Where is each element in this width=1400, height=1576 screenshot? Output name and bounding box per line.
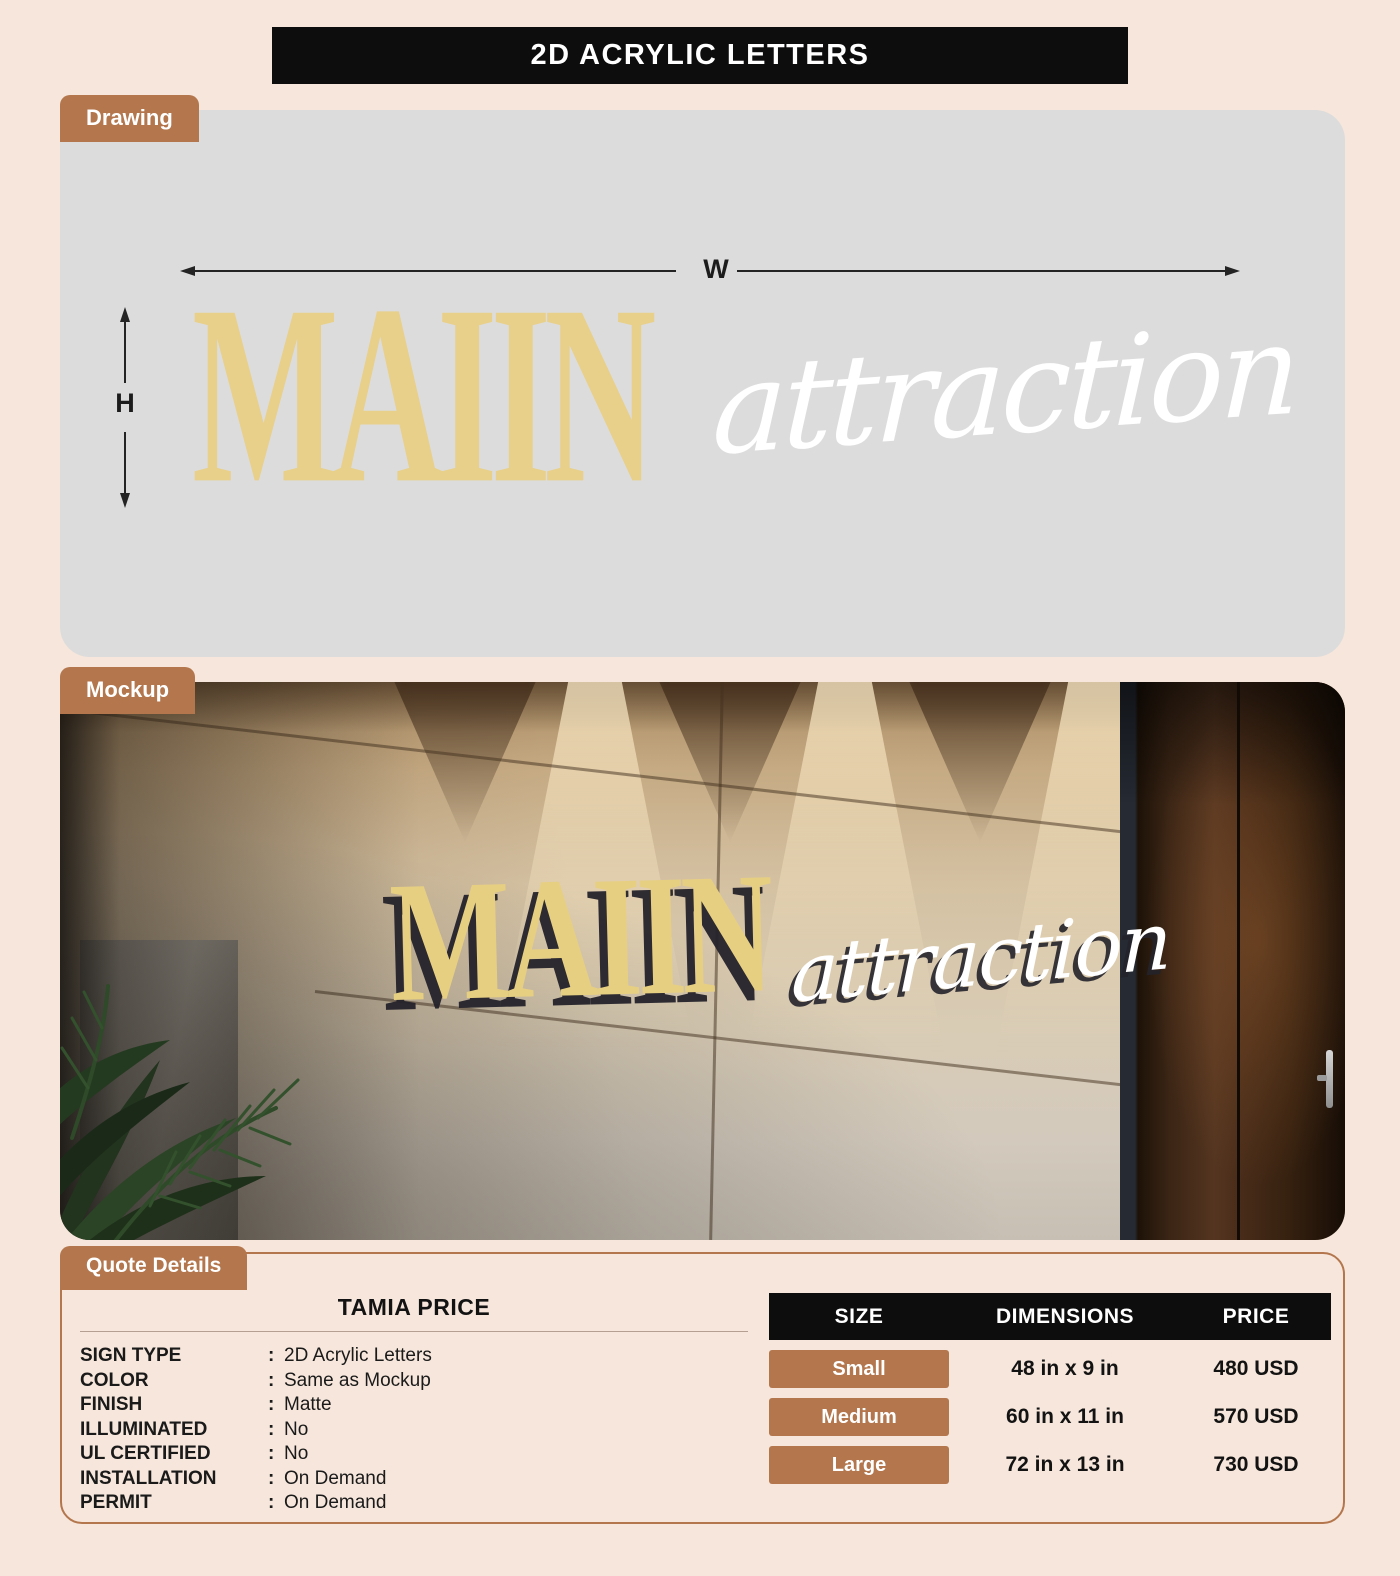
divider <box>80 1331 748 1332</box>
column-header-price: PRICE <box>1181 1305 1331 1329</box>
spec-row-ul-certified: UL CERTIFIED : No <box>80 1442 748 1467</box>
price-table: SIZE DIMENSIONS PRICE Small 48 in x 9 in… <box>769 1293 1331 1484</box>
spec-colon: : <box>268 1491 284 1516</box>
drawing-panel: W H MAIIN attraction <box>60 110 1345 657</box>
spec-label: SIGN TYPE <box>80 1344 268 1369</box>
spec-colon: : <box>268 1344 284 1369</box>
quote-sheet-page: { "page": { "title": "2D ACRYLIC LETTERS… <box>0 27 1400 1576</box>
table-row: Small 48 in x 9 in 480 USD <box>769 1350 1331 1388</box>
spec-label: COLOR <box>80 1369 268 1394</box>
spec-colon: : <box>268 1442 284 1467</box>
spec-value: On Demand <box>284 1491 748 1516</box>
size-medium-button[interactable]: Medium <box>769 1398 949 1436</box>
height-dimension-label: H <box>105 388 145 419</box>
drawing-sign-script-text: attraction <box>711 307 1299 473</box>
height-arrow-top-segment <box>124 315 126 383</box>
customer-name: TAMIA PRICE <box>80 1294 748 1321</box>
spec-row-permit: PERMIT : On Demand <box>80 1491 748 1516</box>
quote-panel: TAMIA PRICE SIGN TYPE : 2D Acrylic Lette… <box>60 1252 1345 1524</box>
spec-colon: : <box>268 1467 284 1492</box>
dimensions-value: 60 in x 11 in <box>949 1405 1181 1429</box>
dimensions-value: 72 in x 13 in <box>949 1453 1181 1477</box>
spec-colon: : <box>268 1393 284 1418</box>
mockup-tab: Mockup <box>60 667 195 714</box>
drawing-section: Drawing W H MAIIN attraction <box>60 110 1345 657</box>
quote-details-section: Quote Details TAMIA PRICE SIGN TYPE : 2D… <box>60 1252 1345 1524</box>
quote-spec-list: TAMIA PRICE SIGN TYPE : 2D Acrylic Lette… <box>80 1294 748 1516</box>
spec-value: No <box>284 1442 748 1467</box>
door-handle <box>1326 1050 1333 1108</box>
spec-label: INSTALLATION <box>80 1467 268 1492</box>
spec-colon: : <box>268 1369 284 1394</box>
drawing-sign-primary-text: MAIIN <box>192 266 649 522</box>
spec-label: UL CERTIFIED <box>80 1442 268 1467</box>
spec-row-sign-type: SIGN TYPE : 2D Acrylic Letters <box>80 1344 748 1369</box>
size-small-button[interactable]: Small <box>769 1350 949 1388</box>
spec-value: Matte <box>284 1393 748 1418</box>
dimensions-value: 48 in x 9 in <box>949 1357 1181 1381</box>
mockup-section: Mockup <box>60 682 1345 1240</box>
spec-row-illuminated: ILLUMINATED : No <box>80 1418 748 1443</box>
height-arrow-bottom-segment <box>124 432 126 500</box>
spec-value: No <box>284 1418 748 1443</box>
column-header-size: SIZE <box>769 1305 949 1329</box>
column-header-dimensions: DIMENSIONS <box>949 1305 1181 1329</box>
spec-value: 2D Acrylic Letters <box>284 1344 748 1369</box>
price-value: 730 USD <box>1181 1453 1331 1477</box>
table-row: Medium 60 in x 11 in 570 USD <box>769 1398 1331 1436</box>
spec-row-installation: INSTALLATION : On Demand <box>80 1467 748 1492</box>
page-title: 2D ACRYLIC LETTERS <box>272 27 1128 84</box>
price-value: 570 USD <box>1181 1405 1331 1429</box>
table-row: Large 72 in x 13 in 730 USD <box>769 1446 1331 1484</box>
arrowhead-up-icon <box>120 301 130 322</box>
quote-details-tab: Quote Details <box>60 1246 247 1290</box>
spec-value: Same as Mockup <box>284 1369 748 1394</box>
price-value: 480 USD <box>1181 1357 1331 1381</box>
mockup-photo: MAIIN attraction <box>60 682 1345 1240</box>
spec-value: On Demand <box>284 1467 748 1492</box>
spec-label: ILLUMINATED <box>80 1418 268 1443</box>
mockup-sign-primary-text: MAIIN <box>388 848 771 1030</box>
arrowhead-right-icon <box>1225 266 1246 276</box>
plant-image <box>60 968 358 1240</box>
size-large-button[interactable]: Large <box>769 1446 949 1484</box>
spec-row-color: COLOR : Same as Mockup <box>80 1369 748 1394</box>
spec-label: PERMIT <box>80 1491 268 1516</box>
door-seam <box>1237 682 1240 1240</box>
spec-row-finish: FINISH : Matte <box>80 1393 748 1418</box>
price-table-header: SIZE DIMENSIONS PRICE <box>769 1293 1331 1340</box>
drawing-tab: Drawing <box>60 95 199 142</box>
spec-colon: : <box>268 1418 284 1443</box>
spec-label: FINISH <box>80 1393 268 1418</box>
arrowhead-down-icon <box>120 493 130 514</box>
width-arrow-right-segment <box>737 270 1232 272</box>
